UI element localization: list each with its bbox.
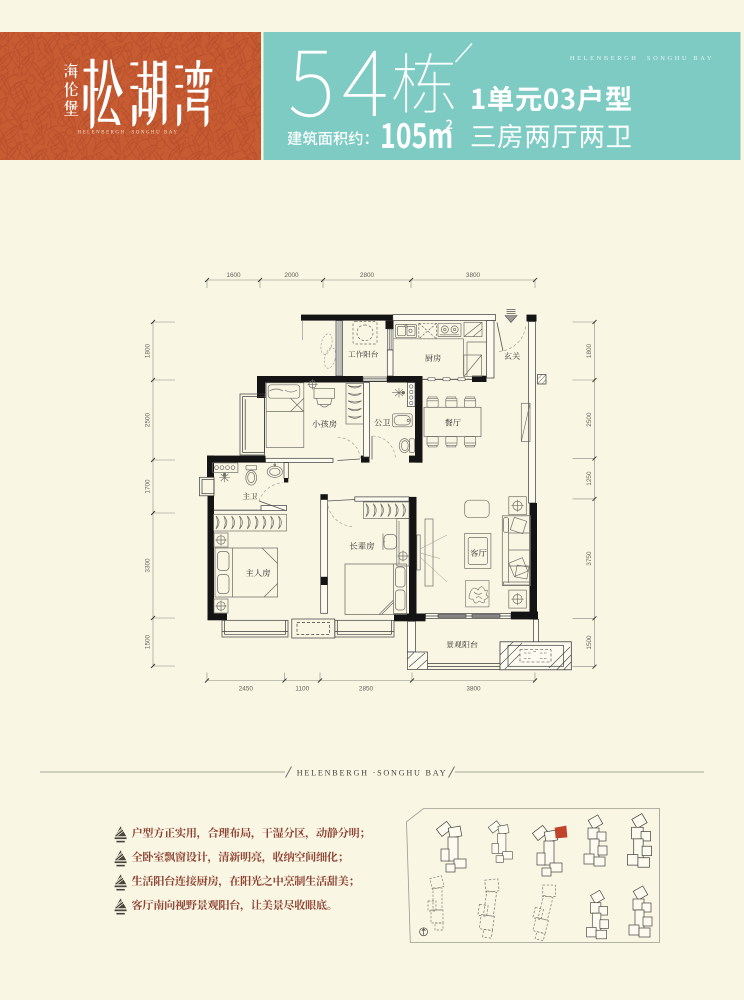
svg-text:1500: 1500 — [586, 635, 593, 650]
svg-text:2000: 2000 — [284, 272, 299, 279]
svg-text:2800: 2800 — [360, 272, 375, 279]
svg-text:1600: 1600 — [226, 272, 241, 279]
svg-text:1800: 1800 — [586, 343, 593, 358]
svg-text:HELENBERGH SONGHU BAY: HELENBERGH SONGHU BAY — [570, 55, 714, 62]
svg-text:1700: 1700 — [145, 479, 152, 494]
svg-text:2500: 2500 — [586, 412, 593, 427]
svg-text:HELENBERGH ·SONGHU BAY: HELENBERGH ·SONGHU BAY — [77, 131, 178, 136]
svg-text:1800: 1800 — [145, 343, 152, 358]
svg-text:3300: 3300 — [145, 558, 152, 573]
svg-text:3750: 3750 — [586, 551, 593, 566]
svg-text:1250: 1250 — [586, 471, 593, 486]
svg-text:2500: 2500 — [145, 412, 152, 427]
svg-text:1100: 1100 — [295, 686, 309, 693]
svg-text:3800: 3800 — [466, 686, 481, 693]
svg-text:HELENBERGH ·SONGHU BAY: HELENBERGH ·SONGHU BAY — [297, 768, 448, 777]
svg-text:2850: 2850 — [359, 686, 374, 693]
svg-text:3800: 3800 — [466, 272, 481, 279]
svg-text:1500: 1500 — [145, 634, 152, 649]
svg-text:2450: 2450 — [239, 686, 254, 693]
